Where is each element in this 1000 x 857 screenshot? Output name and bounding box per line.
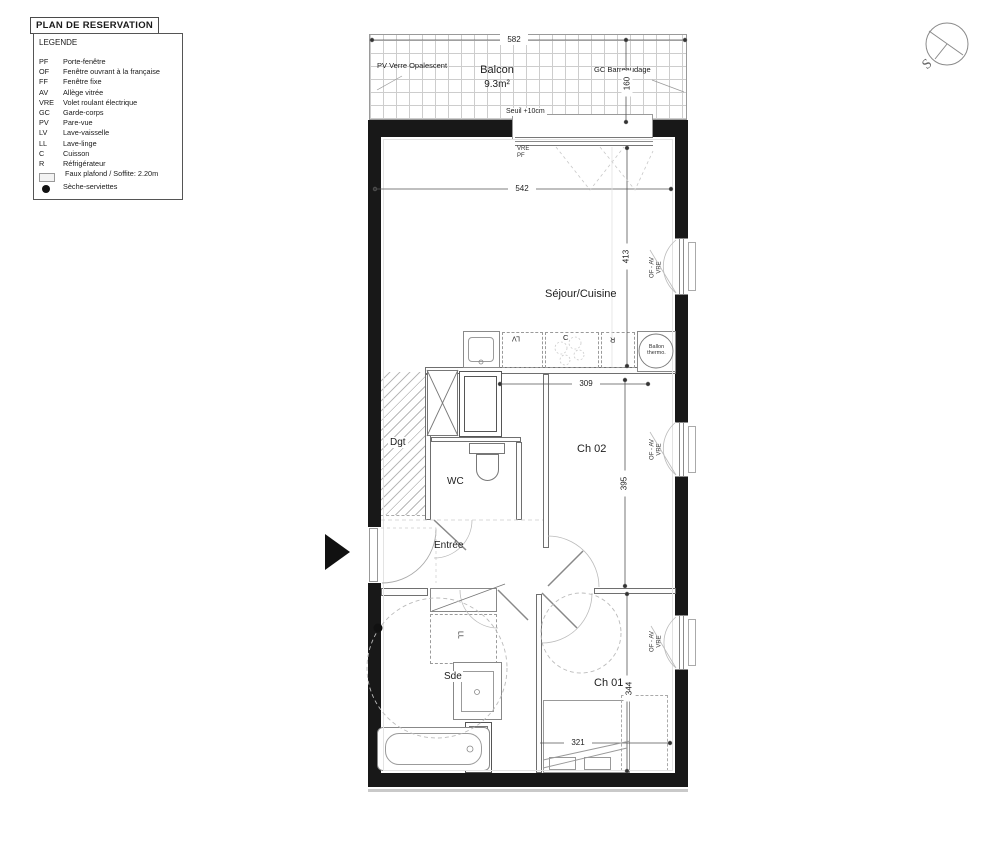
label-ballon: Ballon thermo.: [640, 344, 673, 356]
tall-cabinet-inner: [464, 376, 497, 432]
window-ch01: [675, 615, 688, 670]
wall-right-4: [675, 670, 688, 773]
counter-dishwasher: [502, 332, 543, 368]
room-label-sejour: Séjour/Cuisine: [545, 288, 617, 300]
window-label-ch01: OF - AV VRE: [650, 618, 665, 666]
legend-title: LEGENDE: [34, 38, 182, 57]
window-sill-ch02: [688, 426, 696, 473]
balcony-left-note: PV Verre Opalescent: [377, 62, 447, 70]
toilet-bowl: [476, 454, 499, 481]
partition-ch02-west: [543, 374, 549, 548]
compass-icon: S: [920, 23, 968, 73]
legend-item: VREVolet roulant électrique: [34, 98, 182, 108]
legend-item: PFPorte-fenêtre: [34, 57, 182, 67]
wall-bottom-shadow: [368, 789, 688, 792]
partition-entree-ch01: [594, 588, 676, 594]
partition-ch01-west: [536, 594, 542, 773]
window-top-label: VRE PF: [517, 146, 529, 159]
legend-item: LLLave-linge: [34, 139, 182, 149]
dim-ch01-height: 344: [624, 676, 635, 702]
dim-kitchen-width: 309: [572, 378, 600, 389]
dim-sejour-height: 413: [621, 244, 632, 270]
room-label-ch02: Ch 02: [577, 443, 606, 455]
window-sejour: [675, 238, 688, 295]
room-label-entree: Entrée: [434, 540, 463, 551]
dim-ch01-width: 321: [564, 737, 592, 748]
wall-top-left: [368, 120, 515, 137]
window-label-sejour: OF - AV VRE: [650, 244, 665, 292]
counter-fridge: [601, 332, 635, 368]
wall-right-2: [675, 295, 688, 422]
room-label-sde: Sde: [443, 671, 463, 682]
pillow-2: [584, 757, 611, 770]
seuil-note: Seuil +10cm: [504, 108, 547, 116]
wall-top-right: [653, 120, 688, 137]
legend-panel: LEGENDE PFPorte-fenêtre OFFenêtre ouvran…: [33, 33, 183, 200]
shelf-box: [430, 588, 497, 612]
legend-item: CCuisson: [34, 149, 182, 159]
dim-balcony-width: 582: [500, 34, 528, 45]
window-ch02: [675, 422, 688, 477]
balcony-area: 9.3m²: [460, 79, 534, 90]
legend-item-faux-plafond: Faux plafond / Soffite: 2.20m: [34, 169, 182, 182]
legend-item: LVLave-vaisselle: [34, 128, 182, 138]
partition-wc-right: [516, 442, 522, 520]
label-lv: LV: [512, 334, 520, 342]
entrance-door-leaf: [369, 528, 378, 582]
wall-bottom: [368, 773, 688, 787]
window-label-ch02: OF - AV VRE: [650, 426, 665, 474]
legend-item: OFFenêtre ouvrant à la française: [34, 67, 182, 77]
toilet-tank: [469, 443, 505, 454]
dim-balcony-depth: 160: [622, 71, 633, 97]
legend-item: RRéfrigérateur: [34, 159, 182, 169]
window-sill-sejour: [688, 242, 696, 291]
washing-machine: [430, 614, 497, 664]
entrance-arrow-icon: [325, 534, 350, 570]
bathtub-inner: [385, 733, 482, 765]
legend-item: PVPare-vue: [34, 118, 182, 128]
washbasin-bowl: [461, 671, 494, 712]
legend-item: AVAllège vitrée: [34, 88, 182, 98]
floor-plan-canvas: PLAN DE RESERVATION LEGENDE PFPorte-fenê…: [0, 0, 1000, 857]
wall-right-1: [675, 137, 688, 238]
compass-south-label: S: [920, 56, 936, 72]
porte-fenetre-glass: [515, 137, 653, 146]
wall-left-upper: [368, 137, 381, 527]
pillow-1: [549, 757, 576, 770]
seche-serviettes-dot-icon: [42, 185, 50, 193]
closet-crossed: [427, 370, 458, 436]
room-label-dgt: Dgt: [388, 437, 408, 448]
partition-wc-top: [431, 437, 521, 442]
wardrobe-dashed: [621, 695, 668, 771]
window-sill-ch01: [688, 619, 696, 666]
label-ll: LL: [456, 631, 464, 639]
dim-sejour-width: 542: [508, 183, 536, 194]
balcony-name: Balcon: [460, 64, 534, 76]
room-label-wc: WC: [447, 476, 464, 487]
label-cuisson: C: [563, 334, 568, 342]
legend-item: FFFenêtre fixe: [34, 77, 182, 87]
faux-plafond-swatch: [39, 173, 55, 182]
partition-entree-sde: [381, 588, 428, 596]
dim-ch02-height: 395: [619, 471, 630, 497]
label-refrigerateur: R: [610, 335, 615, 343]
kitchen-sink-bowl: [468, 337, 494, 362]
room-label-ch01: Ch 01: [593, 677, 624, 689]
plan-title: PLAN DE RESERVATION: [30, 17, 159, 34]
counter-cooktop: [545, 332, 599, 368]
legend-item-seche-serviettes: Sèche-serviettes: [34, 182, 182, 193]
legend-item: GCGarde-corps: [34, 108, 182, 118]
wall-right-3: [675, 477, 688, 615]
faux-plafond-hatch-edge: [381, 515, 425, 516]
